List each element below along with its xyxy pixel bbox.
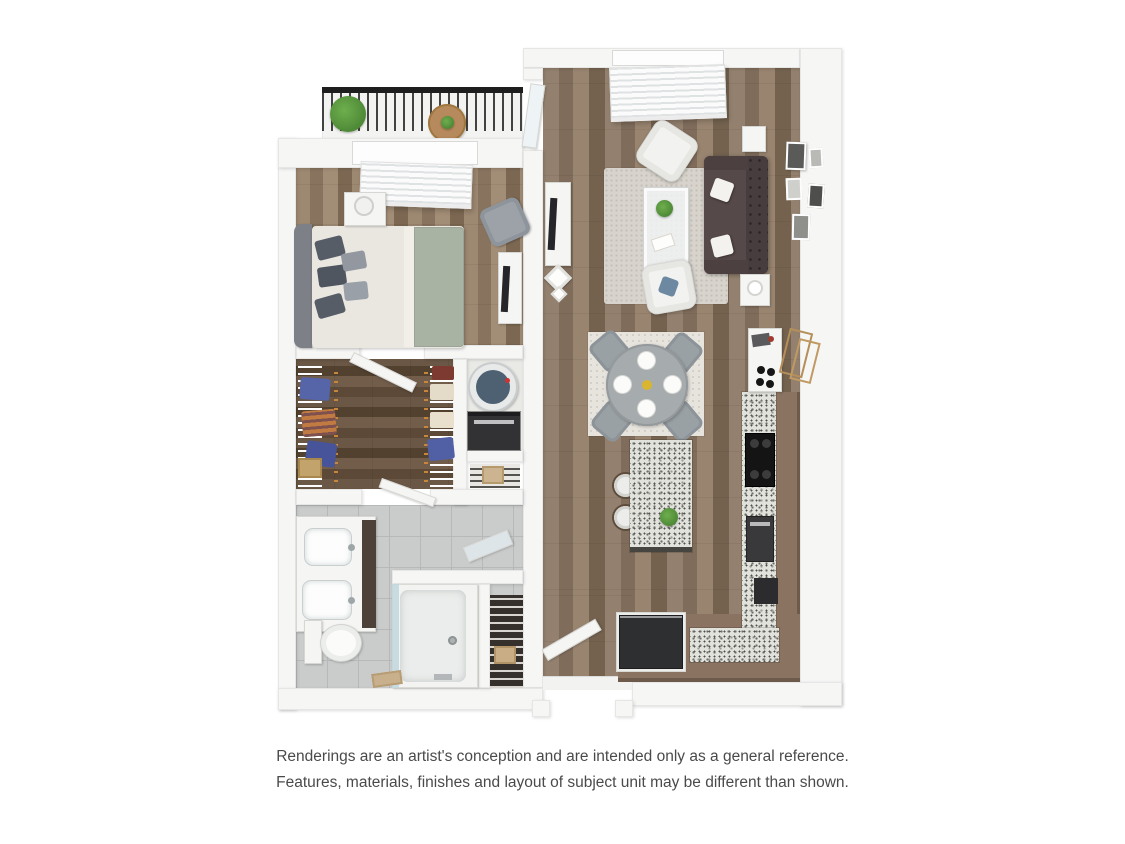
kitchen-island bbox=[630, 440, 692, 552]
nightstand-lamp bbox=[356, 198, 372, 214]
sofa-tufted-back bbox=[746, 156, 768, 274]
coffee-table-plant bbox=[656, 200, 673, 217]
dining-centerpiece bbox=[642, 380, 652, 390]
wine-glass-2 bbox=[767, 368, 775, 376]
faucet-1 bbox=[348, 544, 355, 551]
wall-art-1 bbox=[786, 142, 807, 171]
wall-art-2 bbox=[808, 148, 823, 169]
shower-linen-wall bbox=[478, 584, 490, 688]
closet-clothes-blue bbox=[299, 377, 330, 401]
bar-console-decor bbox=[768, 336, 774, 342]
bed-headboard bbox=[294, 224, 312, 348]
closet-clothes-striped bbox=[301, 409, 337, 438]
wine-glass-4 bbox=[766, 380, 774, 388]
laundry-vent-closet-wall bbox=[467, 450, 523, 462]
oven-handle bbox=[750, 522, 770, 526]
entry-wall-tab-right bbox=[615, 700, 633, 717]
range-burner-4 bbox=[762, 470, 771, 479]
vanity-cabinet-side bbox=[362, 520, 376, 628]
faucet-2 bbox=[348, 597, 355, 604]
closet-hangers-right bbox=[424, 366, 428, 482]
shower-drain bbox=[448, 636, 457, 645]
toilet-bowl bbox=[320, 624, 362, 662]
closet-clothes-cream-1 bbox=[430, 384, 454, 400]
balcony-plant bbox=[330, 96, 366, 132]
vented-closet-basket bbox=[482, 466, 504, 484]
wall-art-4 bbox=[807, 184, 824, 209]
vanity-sink-1 bbox=[304, 528, 352, 566]
floor-plan-page: Renderings are an artist's conception an… bbox=[0, 0, 1125, 844]
shower-top-wall bbox=[392, 570, 523, 584]
living-room-window-blinds bbox=[609, 64, 727, 122]
bed-sheet-fold bbox=[404, 227, 414, 347]
side-table-lamp bbox=[749, 282, 761, 294]
closet-clothes-blue-3 bbox=[427, 437, 455, 462]
sofa-arm-top bbox=[704, 156, 748, 170]
shower-basin bbox=[400, 590, 466, 682]
range-burner-2 bbox=[762, 439, 771, 448]
outer-wall-bottom-right bbox=[632, 682, 842, 706]
bed-sage-blanket bbox=[414, 227, 464, 347]
sofa-arm-bottom bbox=[704, 260, 748, 274]
dining-plate-e bbox=[664, 376, 681, 393]
wine-glass-3 bbox=[756, 378, 764, 386]
dining-plate-s bbox=[638, 400, 655, 417]
closet-bath-wall-left bbox=[296, 489, 362, 505]
island-plant bbox=[660, 508, 678, 526]
closet-bath-wall-right bbox=[430, 489, 523, 505]
closet-basket bbox=[298, 458, 322, 478]
closet-laundry-wall bbox=[453, 359, 467, 505]
balcony-door-open bbox=[522, 83, 546, 148]
vanity-sink-2 bbox=[302, 580, 352, 620]
outer-wall-left bbox=[278, 138, 296, 710]
disclaimer-line-2: Features, materials, finishes and layout… bbox=[0, 770, 1125, 796]
closet-clothes-red bbox=[432, 366, 454, 380]
dining-plate-w bbox=[614, 376, 631, 393]
closet-clothes-cream-2 bbox=[430, 412, 454, 428]
linen-closet bbox=[490, 595, 523, 688]
range-burner-3 bbox=[750, 470, 759, 479]
washer-dryer bbox=[468, 412, 520, 450]
disclaimer-line-1: Renderings are an artist's conception an… bbox=[0, 744, 1125, 770]
dining-plate-n bbox=[638, 352, 655, 369]
kitchen-counter-bottom bbox=[690, 628, 779, 662]
refrigerator bbox=[620, 616, 682, 668]
bed-pillow-5 bbox=[343, 281, 369, 301]
entry-wall-tab-left bbox=[532, 700, 550, 717]
wall-art-3 bbox=[786, 178, 803, 201]
wine-glass-1 bbox=[757, 366, 765, 374]
outer-wall-bottom-left bbox=[278, 688, 543, 710]
shower-fixture bbox=[434, 674, 452, 680]
range-burner-1 bbox=[750, 439, 759, 448]
water-heater-top bbox=[476, 370, 510, 404]
balcony-door-jamb bbox=[523, 68, 543, 80]
wall-art-5 bbox=[792, 214, 810, 240]
washer-dryer-panel bbox=[474, 420, 514, 424]
side-table-top bbox=[742, 126, 766, 152]
linen-basket bbox=[494, 646, 516, 664]
balcony-table-plant bbox=[441, 116, 454, 129]
counter-appliance bbox=[754, 578, 778, 604]
water-heater-valve bbox=[505, 378, 510, 383]
